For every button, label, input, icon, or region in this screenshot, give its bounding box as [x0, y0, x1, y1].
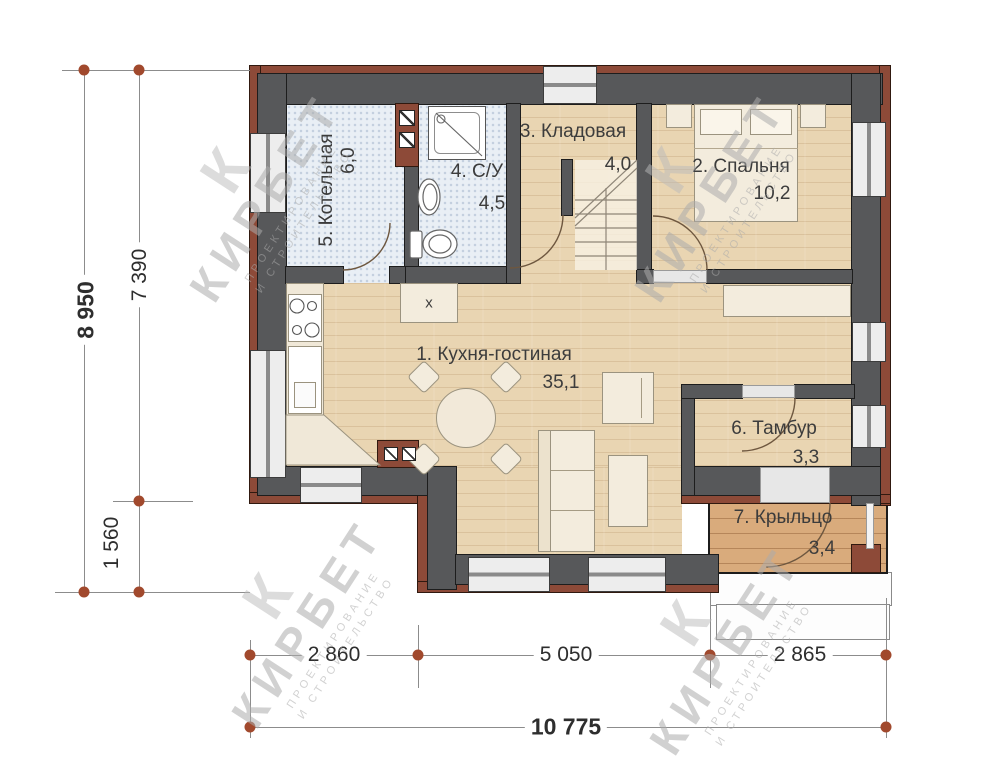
door-threshold-porch: [760, 467, 830, 503]
shower-tray: [434, 112, 480, 154]
dim-dot: [79, 65, 90, 76]
dining-table: [436, 388, 496, 448]
room-label-porch: 7. Крыльцо: [734, 507, 833, 529]
window-bottom-left: [300, 467, 362, 503]
watermark-name: КИРБЕТ: [223, 510, 393, 735]
dim-dot: [245, 650, 256, 661]
porch-step-2: [716, 604, 890, 640]
wall-stairs-right: [637, 104, 651, 283]
dim-label-left-upper: 7 390: [128, 243, 152, 308]
bed-blanket-line: [694, 148, 798, 149]
window-top: [543, 66, 597, 104]
armchair-seam: [641, 378, 642, 418]
island-label: х: [425, 295, 433, 312]
kitchen-sink-basin: [294, 382, 316, 408]
window-boiler: [250, 133, 286, 213]
room-label-kitchen: 1. Кухня-гостиная: [416, 344, 572, 366]
room-area-boiler: 6,0: [338, 133, 360, 246]
dim-label-left-lower: 1 560: [100, 511, 124, 576]
window-kitchen: [250, 350, 286, 478]
dim-dot: [881, 722, 892, 733]
dim-dot: [134, 587, 145, 598]
window-living-2: [588, 557, 666, 592]
watermark: К КИРБЕТ ПРОЕКТИРОВАНИЕ И СТРОИТЕЛЬСТВО: [182, 484, 417, 752]
dim-dot: [134, 496, 145, 507]
nightstand-left: [666, 104, 692, 128]
room-label-vestibule: 6. Тамбур: [731, 418, 817, 440]
sofa-seam-1: [551, 470, 595, 471]
nightstand-right: [800, 104, 826, 128]
wall-bedroom-bottom-a: [637, 270, 653, 283]
vent-hatch-3: [384, 447, 398, 461]
window-living-1: [468, 557, 550, 592]
room-area-bathroom: 4,5: [479, 193, 505, 215]
wall-boiler-bottom-a: [286, 267, 343, 283]
dim-ext-mid: [113, 501, 193, 502]
dim-label-bottom-seg3: 2 865: [768, 643, 833, 667]
wall-bath-storage-divider: [507, 104, 520, 283]
room-area-vestibule: 3,3: [793, 447, 819, 469]
floor-plan-canvas: 1. Кухня-гостиная 35,1 2. Спальня 10,2 3…: [0, 0, 1000, 779]
kirbet-logo-mark: К: [182, 484, 352, 709]
vent-hatch-2: [399, 132, 415, 148]
room-area-storage: 4,0: [605, 154, 631, 176]
sofa-seam-2: [551, 510, 595, 511]
dim-dot: [881, 650, 892, 661]
dim-dot: [79, 587, 90, 598]
dim-dot: [134, 65, 145, 76]
cabinet-living: [723, 285, 851, 317]
dim-dot: [705, 650, 716, 661]
room-label-bathroom: 4. С/У: [451, 161, 503, 183]
pillow-left: [700, 109, 742, 135]
dim-dot: [413, 650, 424, 661]
wall-vestibule-top-b: [795, 385, 854, 398]
sofa-backrest: [538, 430, 551, 552]
door-threshold-bedroom: [653, 270, 707, 283]
wall-boiler-bottom-b: [390, 267, 405, 283]
porch-post: [852, 545, 880, 572]
pillow-right: [750, 109, 792, 135]
wall-vestibule-left: [682, 390, 694, 495]
dim-ext-x710: [710, 598, 711, 688]
room-label-boiler-name: 5. Котельная: [316, 133, 338, 246]
wall-step: [428, 467, 456, 589]
armchair: [602, 372, 654, 424]
stove: [288, 294, 322, 342]
dim-label-bottom-seg1: 2 860: [302, 643, 367, 667]
wall-bedroom-bottom-b: [707, 270, 852, 283]
porch-column: [866, 503, 874, 549]
brick-step: [418, 493, 428, 592]
vent-hatch-1: [399, 110, 415, 126]
dim-dot: [245, 722, 256, 733]
room-label-storage: 3. Кладовая: [520, 121, 626, 143]
window-vestibule: [852, 405, 886, 448]
coffee-table: [608, 455, 648, 527]
dim-line-left-inner: [139, 70, 140, 592]
room-area-bedroom: 10,2: [754, 183, 791, 205]
door-threshold-vestibule: [742, 385, 795, 398]
watermark-subtitle-1: ПРОЕКТИРОВАНИЕ: [263, 536, 405, 743]
window-living-right: [852, 322, 886, 362]
window-bedroom: [852, 122, 886, 197]
porch-step-1: [710, 572, 892, 606]
dim-ext-top: [62, 70, 250, 71]
wall-bath-bottom: [405, 267, 510, 283]
wall-stairs-stub: [562, 160, 572, 215]
dim-ext-x886: [886, 598, 887, 738]
room-area-kitchen: 35,1: [543, 372, 580, 394]
dim-label-bottom-seg2: 5 050: [534, 643, 599, 667]
room-area-porch: 3,4: [809, 538, 835, 560]
vent-hatch-4: [402, 447, 416, 461]
dim-label-left-total: 8 950: [73, 275, 100, 345]
room-label-boiler: 5. Котельная 6,0: [316, 133, 360, 246]
wall-vestibule-top-a: [682, 385, 742, 398]
dim-label-bottom-total: 10 775: [525, 714, 607, 741]
room-label-bedroom: 2. Спальня: [692, 156, 789, 178]
